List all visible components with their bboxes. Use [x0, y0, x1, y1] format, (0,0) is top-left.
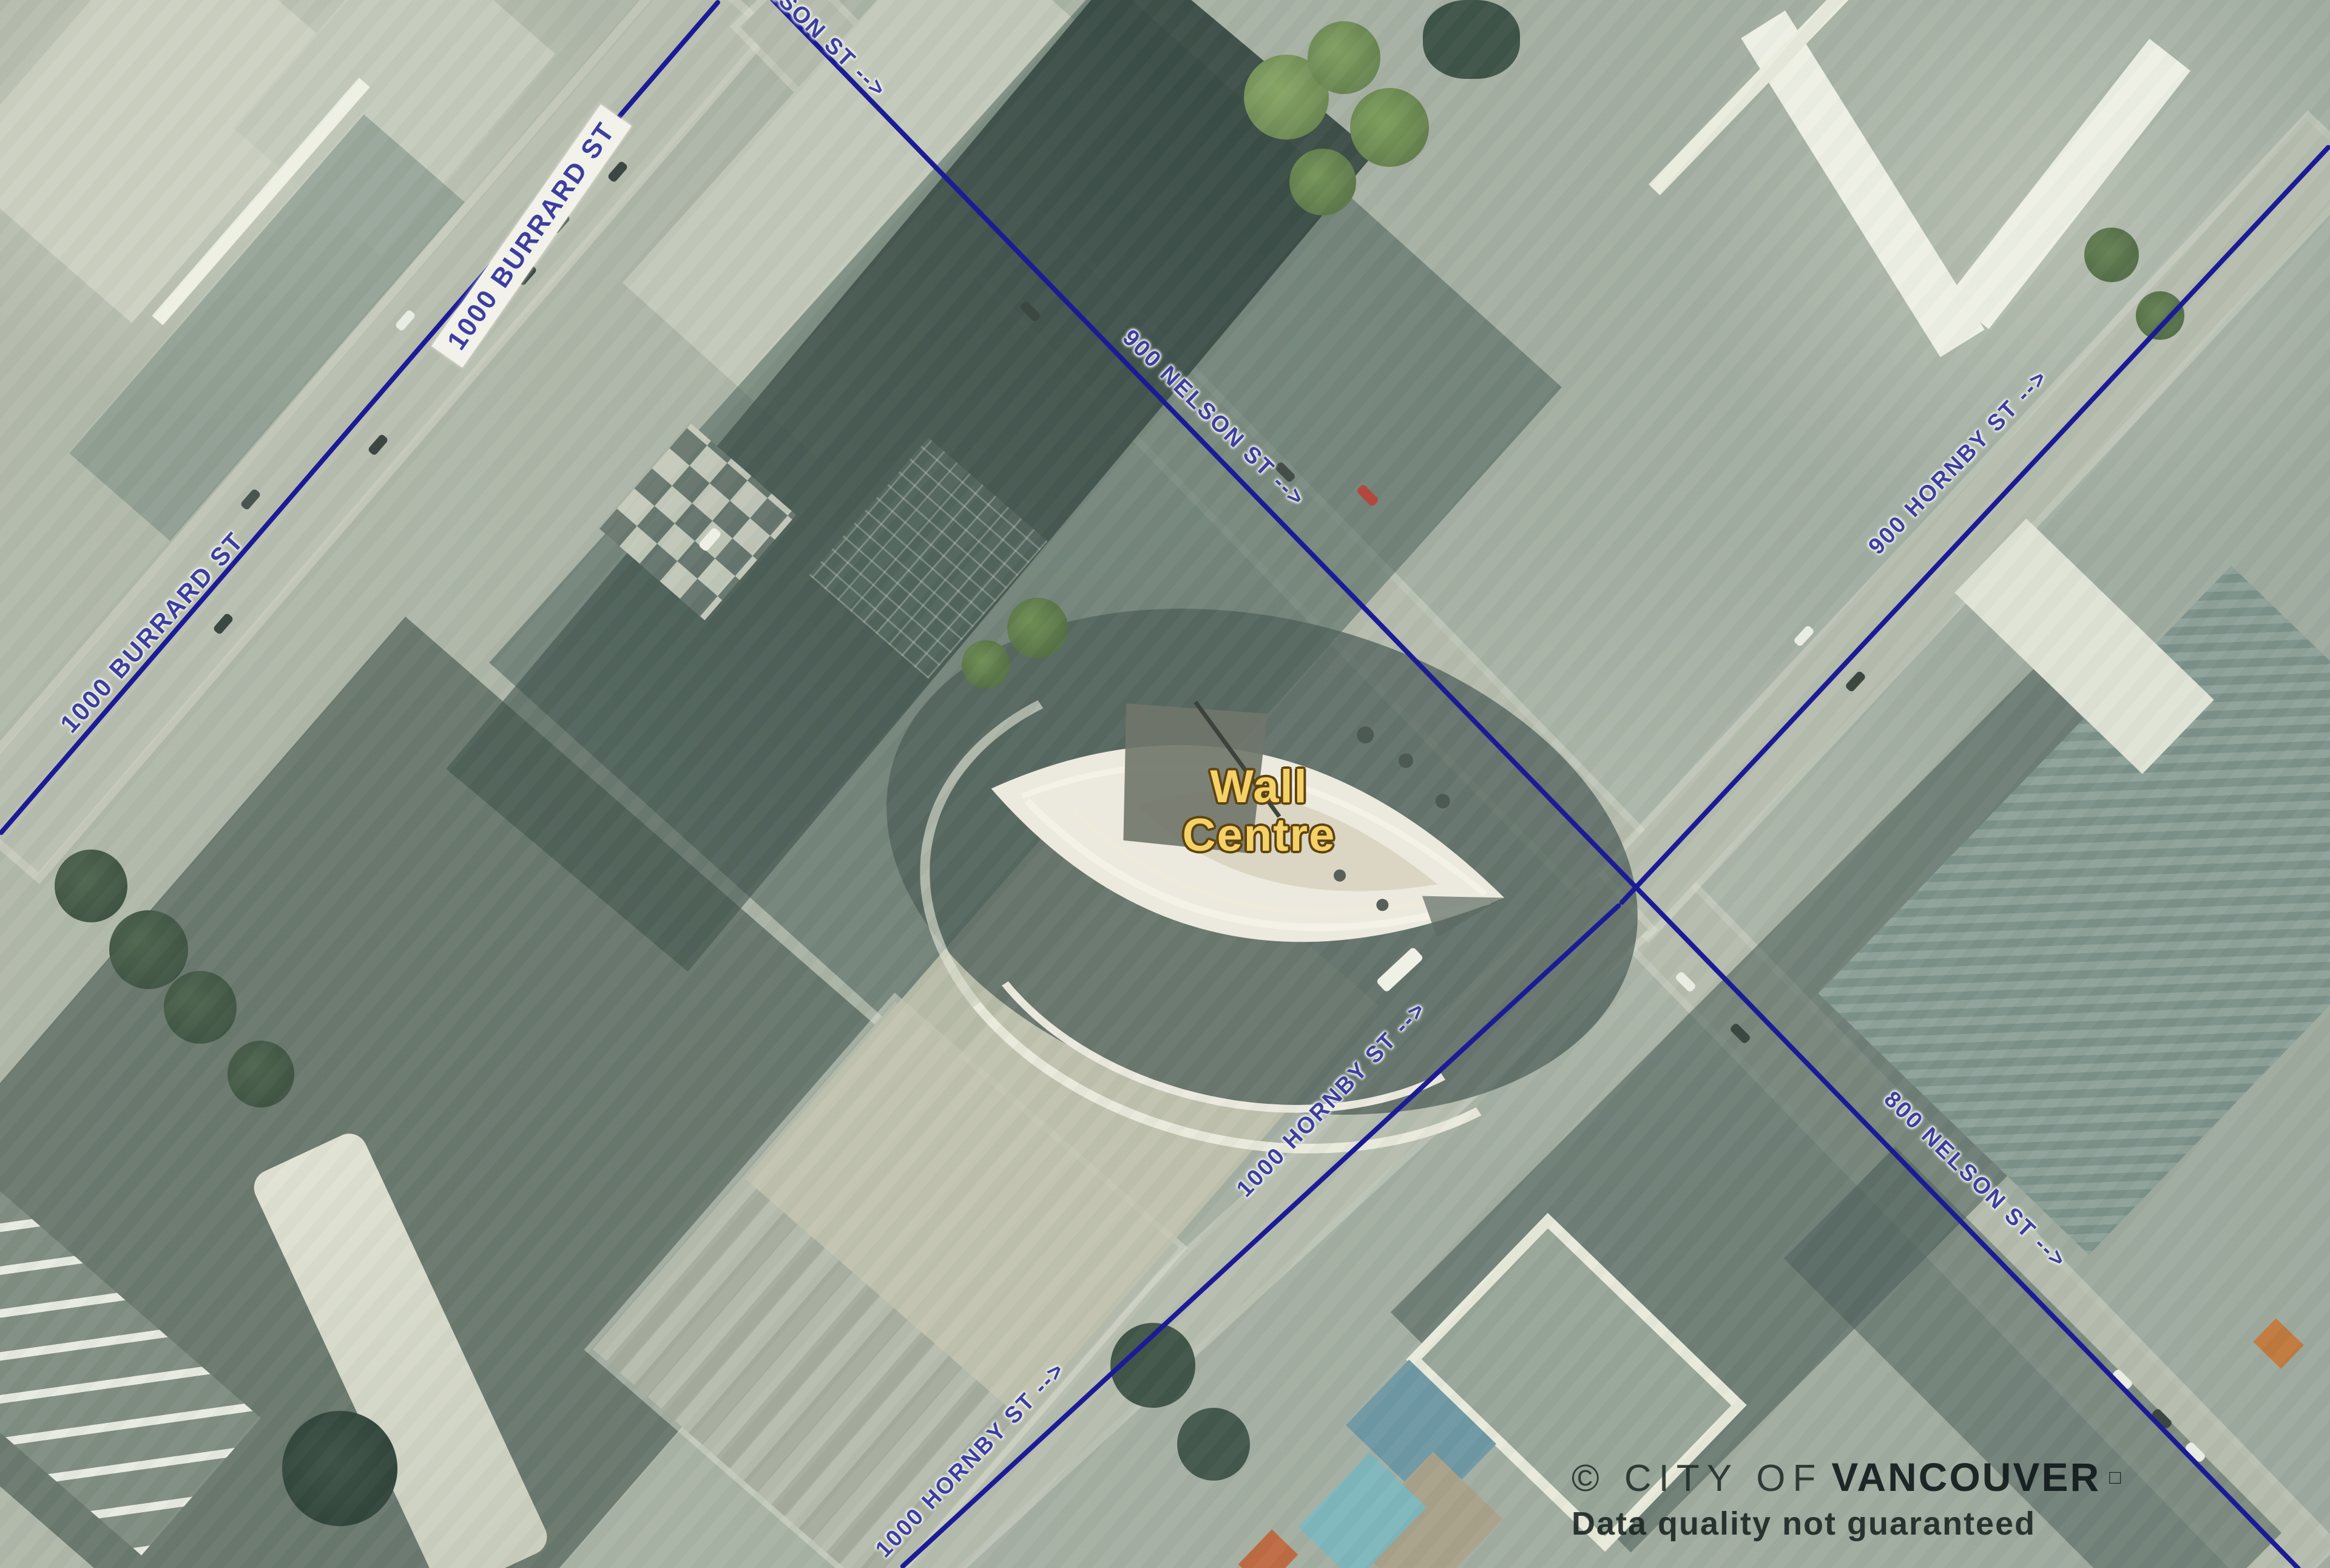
aerial-map-canvas[interactable]: 1000 BURRARD ST 1000 BURRARD ST 900 NELS…	[0, 0, 2330, 1568]
roof-vent	[1355, 725, 1376, 745]
place-label-line2: Centre	[1183, 811, 1336, 860]
watermark-copyright: © CITY OF	[1572, 1457, 1823, 1500]
watermark-disclaimer: Data quality not guaranteed	[1572, 1505, 2121, 1543]
watermark-line1: © CITY OFVANCOUVER□	[1572, 1454, 2121, 1500]
registered-mark-icon: □	[2109, 1466, 2121, 1489]
watermark-brand: VANCOUVER	[1831, 1454, 2101, 1500]
watermark: © CITY OFVANCOUVER□ Data quality not gua…	[1572, 1454, 2121, 1543]
place-label-line1: Wall	[1183, 763, 1336, 811]
roof-vent	[1434, 792, 1451, 810]
roof-vent	[1397, 752, 1414, 769]
place-label-wall-centre: Wall Centre	[1183, 763, 1336, 860]
